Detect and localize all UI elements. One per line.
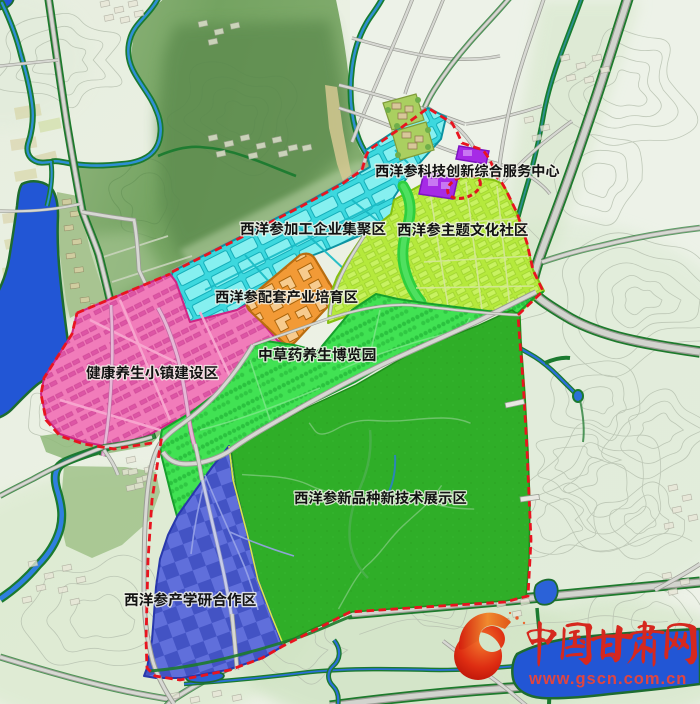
svg-text:www.gscn.com.cn: www.gscn.com.cn	[528, 670, 687, 688]
